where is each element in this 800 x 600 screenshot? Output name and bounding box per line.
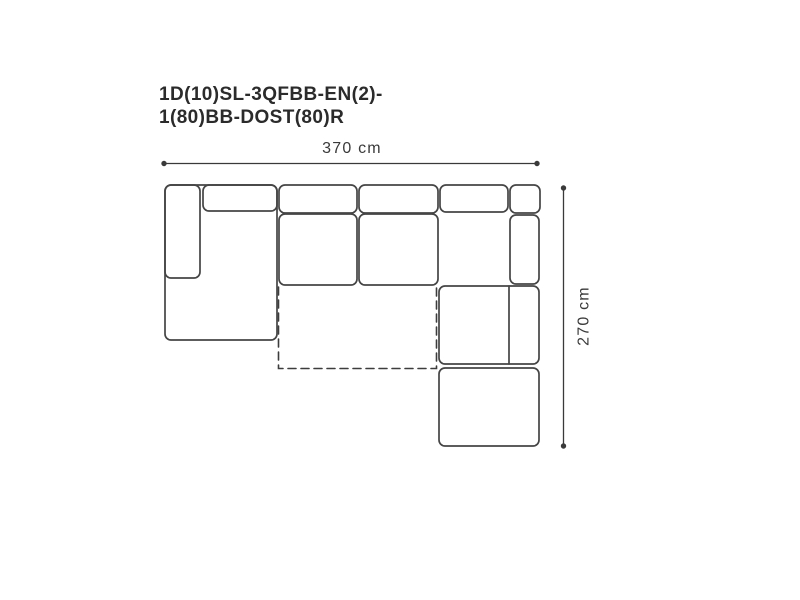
ottoman [439,368,539,446]
sofa-plan-page: 1D(10)SL-3QFBB-EN(2)- 1(80)BB-DOST(80)R … [0,0,800,600]
width-dimension-dot-right [534,161,539,166]
right-armrest [510,215,539,284]
back-cushion-middle [279,185,357,213]
sofa-modules [165,185,540,446]
height-dimension: 270 cm [561,185,593,448]
width-dimension-dot-left [161,161,166,166]
back-cushion-left [203,185,277,211]
product-code-line1: 1D(10)SL-3QFBB-EN(2)- [159,84,383,105]
sofa-plan-diagram: 1D(10)SL-3QFBB-EN(2)- 1(80)BB-DOST(80)R … [0,0,800,600]
seat-cushion-right [359,214,438,285]
corner-back-cushion [440,185,508,212]
left-armrest [165,185,200,278]
chaise-longue-outline [165,185,277,340]
product-code-line2: 1(80)BB-DOST(80)R [159,107,344,128]
product-code-title: 1D(10)SL-3QFBB-EN(2)- 1(80)BB-DOST(80)R [159,84,383,128]
seat-cushion-middle [279,214,357,285]
back-cushion-right [359,185,438,213]
height-dimension-label: 270 cm [576,286,593,346]
right-armrest-top [510,185,540,213]
width-dimension-label: 370 cm [322,140,382,157]
right-seat-section [439,286,539,364]
width-dimension: 370 cm [161,140,539,166]
height-dimension-dot-top [561,185,566,190]
pull-out-bed-dashed-outline [279,287,437,369]
height-dimension-dot-bottom [561,443,566,448]
